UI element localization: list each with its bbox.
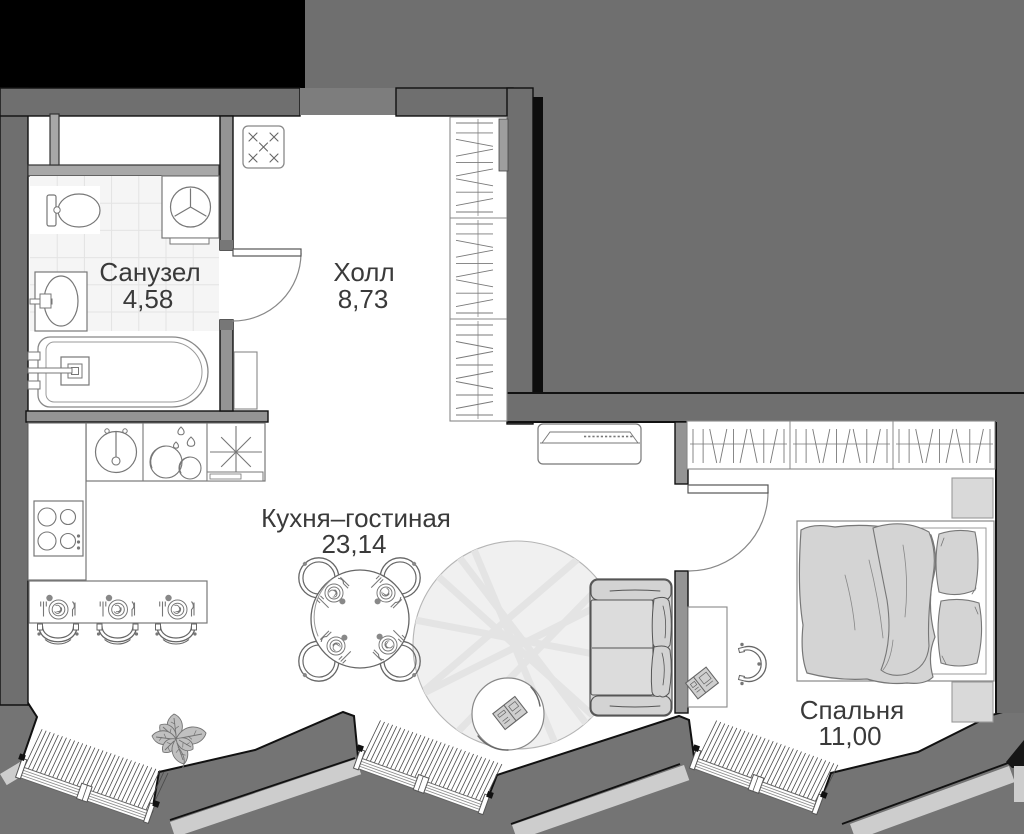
svg-text:4,58: 4,58 — [123, 284, 174, 314]
svg-text:23,14: 23,14 — [321, 529, 386, 559]
svg-text:Холл: Холл — [333, 257, 394, 287]
svg-text:11,00: 11,00 — [818, 721, 881, 751]
svg-text:8,73: 8,73 — [338, 284, 389, 314]
svg-text:Санузел: Санузел — [99, 257, 200, 287]
